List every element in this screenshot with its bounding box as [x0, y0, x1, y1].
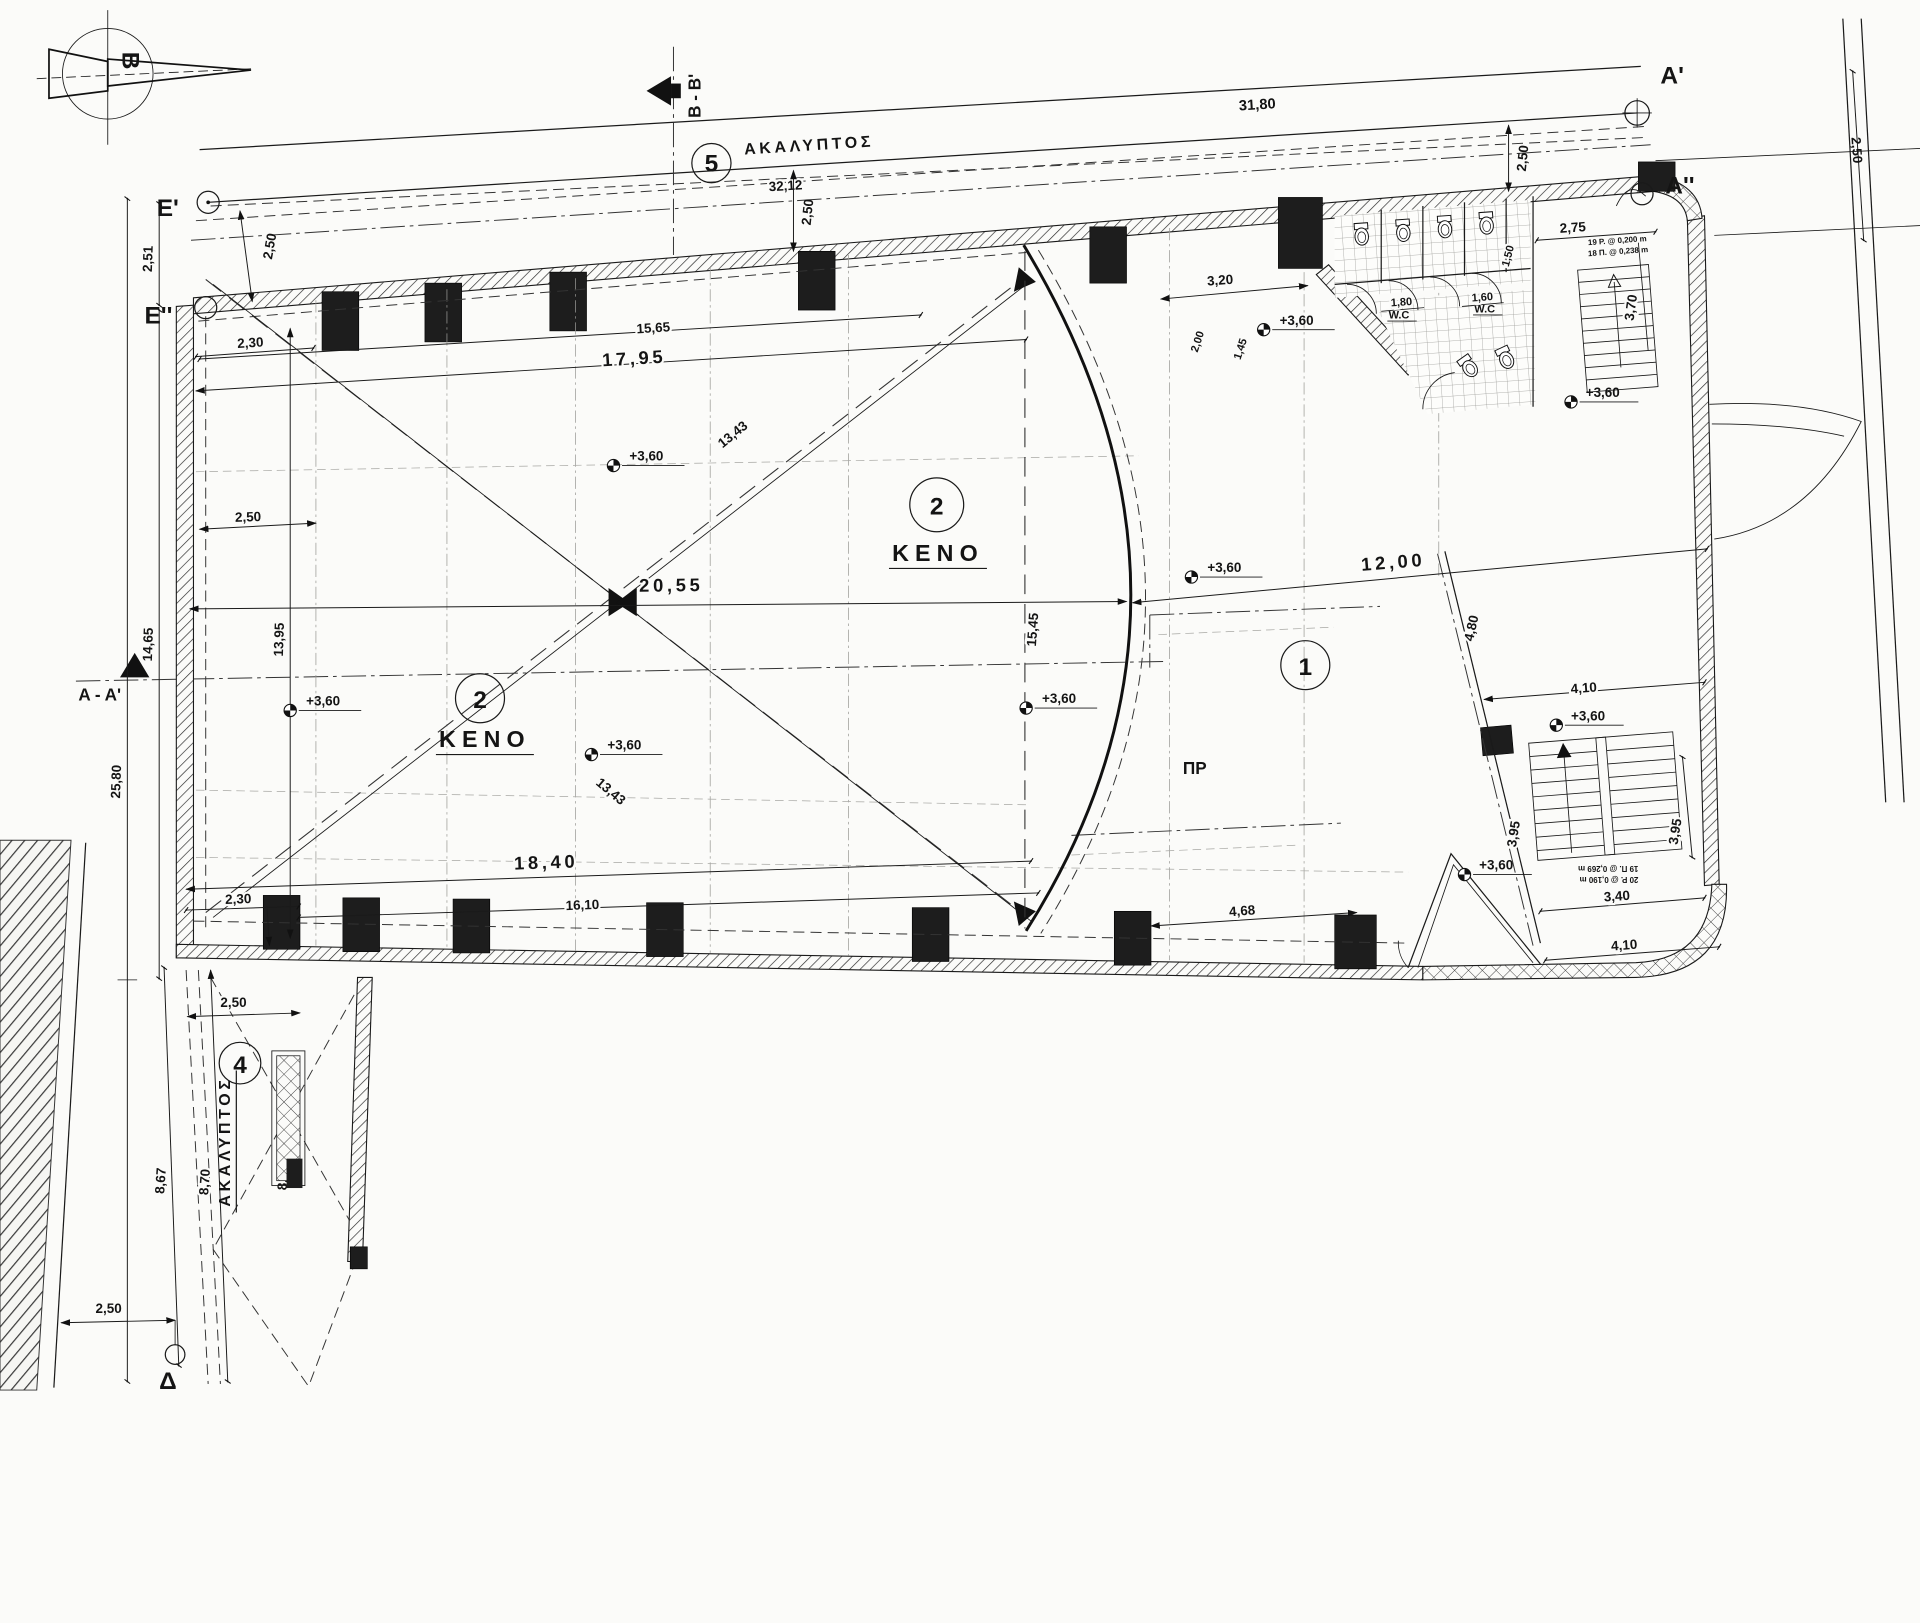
- marker-e1: E': [157, 195, 179, 222]
- dim-25-80: 25,80: [108, 765, 124, 799]
- region-4-number: 4: [233, 1052, 247, 1079]
- light-shaft: [272, 1051, 305, 1188]
- strip-right-wall: [348, 977, 372, 1261]
- section-aa-label: A - A': [78, 685, 121, 705]
- region-1-number: 1: [1299, 654, 1313, 681]
- dim-2-50-strip4: 2,50: [220, 995, 246, 1010]
- dim-2-51: 2,51: [140, 245, 156, 272]
- region-2a-number: 2: [930, 494, 944, 521]
- region-5-number: 5: [705, 151, 719, 178]
- dim-17-95: 17,95: [601, 346, 666, 371]
- lobby-line: [1445, 551, 1541, 943]
- dim-14-65: 14,65: [140, 627, 156, 662]
- floor-plan-page: B B - B' A - A': [0, 0, 1920, 1623]
- dim-12-00: 12,00: [1360, 549, 1426, 575]
- dim-2-75: 2,75: [1559, 219, 1587, 236]
- section-bb-label: B - B': [684, 74, 704, 118]
- dim-13-43-b: 13,43: [593, 775, 628, 808]
- dim-2-30-bot: 2,30: [225, 891, 252, 907]
- svg-text:+3,60: +3,60: [306, 694, 340, 709]
- dim-1-45: 1,45: [1232, 337, 1250, 361]
- dim-1-60: 1,60: [1471, 291, 1493, 304]
- region-5-label: ΑΚΑΛΥΠΤΟΣ: [744, 133, 875, 158]
- north-letter: B: [116, 52, 143, 70]
- section-aa: A - A': [76, 653, 1163, 705]
- dim-32-12: 32,12: [768, 177, 803, 194]
- dim-3-95-l: 3,95: [1504, 819, 1523, 848]
- svg-text:+3,60: +3,60: [607, 738, 641, 753]
- floor-plan-canvas: B B - B' A - A': [0, 0, 1920, 1623]
- stair-main-note-1: 20 P. @ 0,190 m: [1580, 875, 1639, 884]
- dim-15-65: 15,65: [636, 319, 671, 336]
- region-2a-keno: KENO: [892, 540, 984, 566]
- marker-e2: E'': [144, 303, 172, 330]
- stair-main-note-2: 19 Π. @ 0,269 m: [1578, 864, 1638, 873]
- dim-4-10-a: 4,10: [1570, 680, 1597, 697]
- dim-31-80: 31,80: [1238, 96, 1276, 114]
- svg-text:+3,60: +3,60: [1571, 708, 1605, 723]
- marker-a2: A'': [1665, 173, 1694, 200]
- dim-13-43-a: 13,43: [715, 418, 751, 451]
- marker-delta: Δ: [159, 1368, 177, 1395]
- dim-20-55: 20,55: [639, 574, 703, 596]
- dim-2-50-strip2: 2,50: [1514, 144, 1532, 172]
- dim-2-30-top: 2,30: [237, 334, 264, 351]
- stair-notes: 19 P. @ 0,200 m 18 Π. @ 0,238 m 20 P. @ …: [1578, 234, 1648, 884]
- dim-3-95-r: 3,95: [1666, 817, 1685, 846]
- dim-13-95: 13,95: [271, 622, 287, 657]
- dim-2-50-e: 2,50: [260, 232, 279, 260]
- dim-8-70: 8,70: [196, 1168, 213, 1195]
- dim-2-50-street: 2,50: [1848, 137, 1865, 164]
- svg-text:+3,60: +3,60: [1207, 560, 1241, 575]
- dim-18-40: 18,40: [514, 850, 579, 873]
- dim-16-10: 16,10: [565, 897, 599, 913]
- svg-text:+3,60: +3,60: [1280, 313, 1314, 328]
- dim-3-20: 3,20: [1207, 272, 1234, 289]
- dim-2-50-mid: 2,50: [235, 509, 262, 525]
- left-wall: [176, 305, 193, 958]
- structural-grid: [193, 228, 1540, 963]
- dim-2-00: 2,00: [1189, 330, 1207, 354]
- dim-4-10-b: 4,10: [1611, 937, 1638, 954]
- dimensions: 31,80 32,12 2,50 2,50 2,50 2,50 2,51 14,…: [61, 71, 1865, 1381]
- wc-label-1: W.C: [1389, 310, 1410, 322]
- region-2b-keno: KENO: [439, 726, 531, 752]
- region-4-label: ΑΚΑΛΥΠΤΟΣ: [217, 1076, 234, 1206]
- dim-1-80: 1,80: [1390, 296, 1412, 309]
- dim-3-70: 3,70: [1622, 293, 1640, 321]
- stair-main: [1529, 732, 1682, 861]
- dim-15-45: 15,45: [1024, 612, 1041, 647]
- label-pr: ΠΡ: [1183, 758, 1207, 778]
- dim-8-67: 8,67: [152, 1167, 169, 1194]
- region-2b-number: 2: [473, 687, 487, 714]
- corner-bottom-right: [1423, 884, 1727, 980]
- svg-text:+3,60: +3,60: [1479, 858, 1513, 873]
- dim-2-50-strip: 2,50: [799, 198, 817, 226]
- dim-3-40: 3,40: [1603, 888, 1630, 905]
- svg-text:+3,60: +3,60: [629, 449, 663, 464]
- marker-a1: A': [1660, 63, 1684, 90]
- svg-text:+3,60: +3,60: [1586, 385, 1620, 400]
- svg-text:+3,60: +3,60: [1042, 691, 1076, 706]
- north-arrow: B: [37, 10, 251, 145]
- neighbour-building-hatch: [0, 840, 71, 1390]
- dim-2-50-delta: 2,50: [96, 1301, 122, 1316]
- dim-4-68: 4,68: [1229, 902, 1257, 919]
- street-edge: [1843, 19, 1886, 803]
- dim-4-80: 4,80: [1461, 614, 1481, 643]
